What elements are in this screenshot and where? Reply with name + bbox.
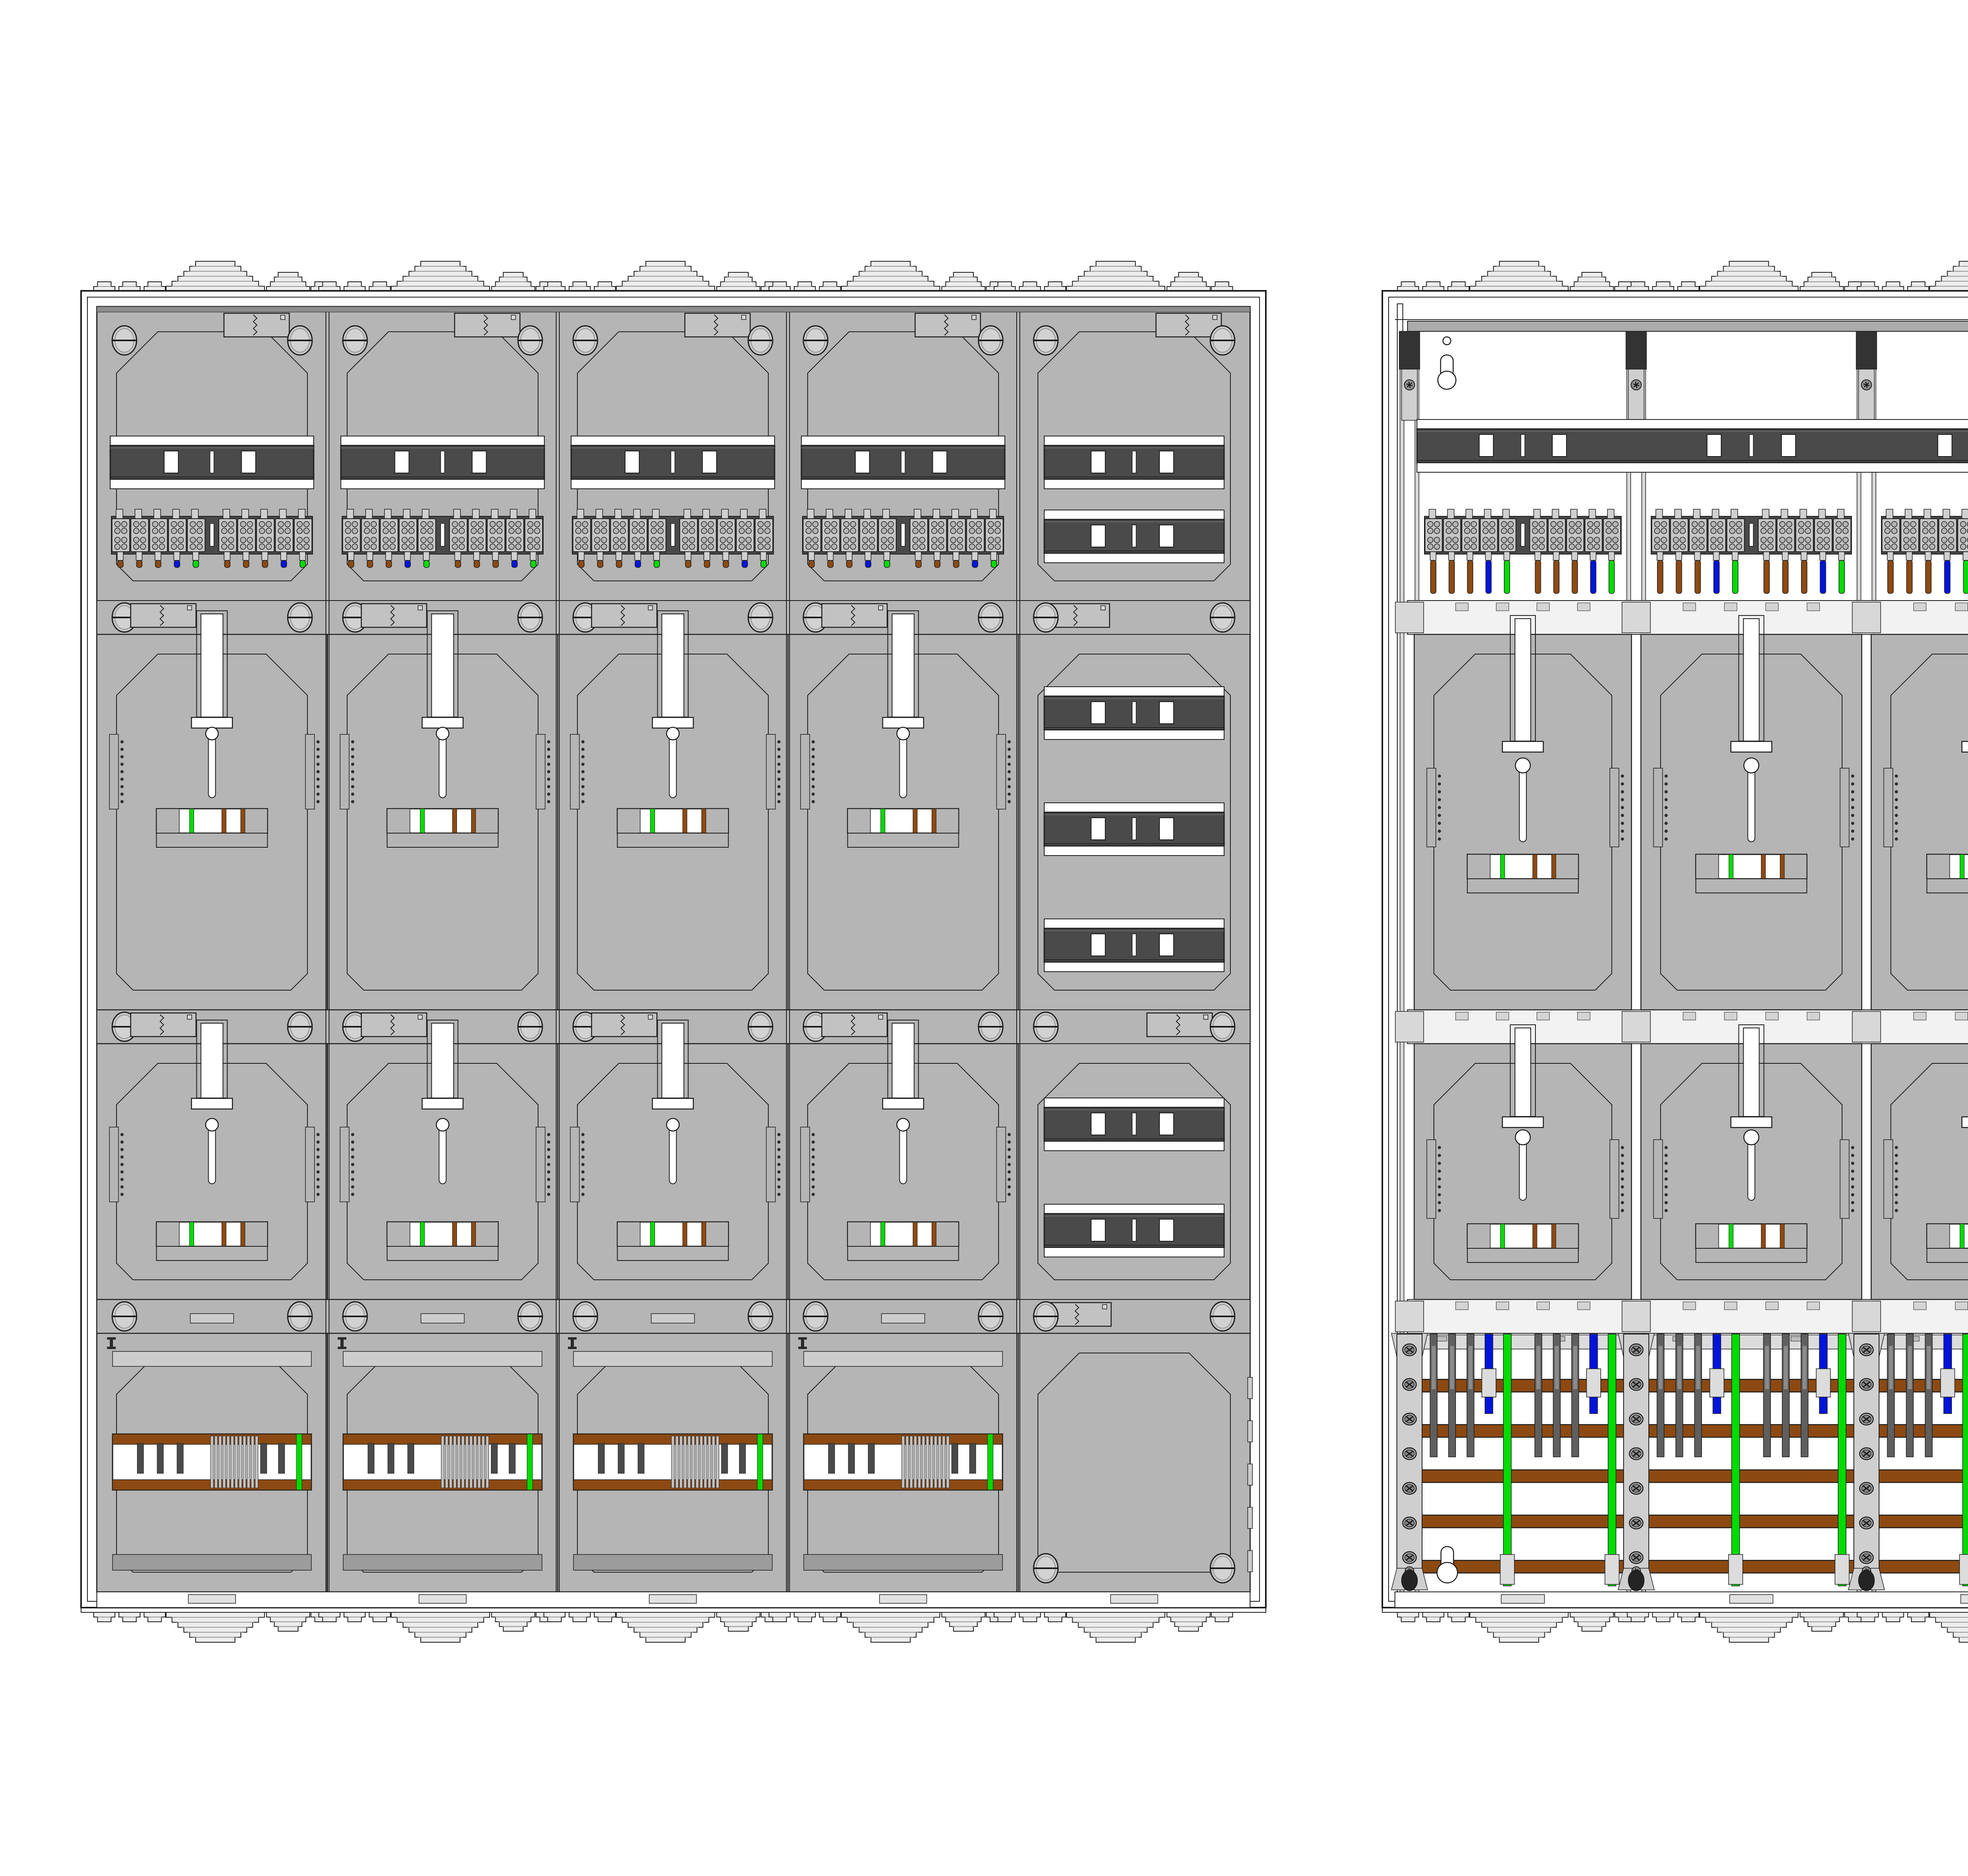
busbar-window — [343, 1434, 542, 1490]
wire-brown — [1657, 560, 1663, 593]
latch-icon — [592, 1013, 657, 1037]
wire-brown — [916, 560, 921, 567]
window-flap — [1927, 1248, 1968, 1262]
latch-icon — [224, 313, 289, 337]
top-cross-rail — [1408, 321, 1968, 331]
meter-cover-panel — [97, 611, 327, 1010]
busbar-support-plate — [1391, 1333, 1428, 1591]
slat — [215, 1436, 217, 1488]
wire-green — [1609, 560, 1615, 593]
connector-tab — [278, 1444, 285, 1473]
oval-slot-screw-icon — [573, 326, 597, 355]
phase-stripe — [472, 1222, 476, 1246]
torx-screw-icon — [1861, 380, 1872, 390]
earth-stripe — [881, 1222, 885, 1246]
clip-handle — [1501, 1595, 1544, 1603]
slat — [462, 1436, 464, 1488]
meter-terminal-window — [387, 809, 498, 847]
din-rail — [1044, 1204, 1224, 1257]
wire-brown — [828, 560, 833, 567]
conductor-clip — [1940, 1369, 1955, 1397]
latch-icon — [131, 604, 196, 627]
slat — [441, 1436, 444, 1488]
earth-conductor — [1962, 1334, 1968, 1586]
din-rail — [1044, 436, 1224, 489]
meter-cover-panel — [1414, 1025, 1631, 1299]
slat — [934, 1436, 937, 1488]
phillips-screw-icon — [1630, 1379, 1643, 1390]
meter-cabinet-drawing — [0, 0, 1968, 1876]
phase-stripe — [241, 1222, 245, 1246]
wire-green — [1839, 560, 1844, 593]
edge-tab — [1248, 1551, 1252, 1572]
slat — [449, 1436, 452, 1488]
din-rail — [1417, 420, 1968, 472]
window-flap — [1467, 879, 1578, 893]
cover-handle — [1111, 1595, 1158, 1603]
wire-brown — [455, 560, 461, 567]
wire-brown — [474, 560, 479, 567]
slat — [946, 1436, 949, 1488]
earth-stripe — [527, 1434, 533, 1490]
bottom-row-cover-panel — [558, 1333, 788, 1592]
earth-stripe — [651, 809, 655, 833]
phillips-screw-icon — [1630, 1448, 1643, 1460]
oval-slot-screw-icon — [978, 326, 1003, 355]
blank-cover-panel — [1018, 1303, 1252, 1592]
busbar — [1417, 1515, 1968, 1528]
earth-stripe — [1729, 854, 1733, 879]
earth-stripe — [651, 1222, 655, 1246]
window-flap — [618, 833, 729, 847]
oval-slot-screw-icon — [518, 603, 542, 632]
wire-blue — [1944, 560, 1950, 593]
meter-cover-panel — [327, 611, 558, 1010]
earth-stripe — [1500, 1224, 1505, 1248]
drawing-page — [0, 0, 1968, 1876]
wire-brown — [224, 560, 230, 567]
phillips-screw-icon — [1403, 1344, 1417, 1356]
wire-brown — [685, 560, 691, 567]
meter-cover-panel — [1414, 615, 1631, 1010]
wire-blue — [972, 560, 978, 567]
busbar-window — [573, 1434, 772, 1490]
slat — [231, 1436, 234, 1488]
oval-slot-screw-icon — [112, 1302, 137, 1331]
connector-tab — [408, 1444, 414, 1473]
meter-cover-panel — [97, 1020, 327, 1299]
wire-brown — [118, 560, 123, 567]
slat — [902, 1436, 904, 1488]
din-rail — [1044, 803, 1224, 856]
torx-screw-icon — [1404, 380, 1415, 390]
meter-terminal-window — [848, 1222, 959, 1261]
window-flap — [1467, 1248, 1578, 1262]
connector-tab — [721, 1444, 728, 1473]
window-flap — [387, 833, 498, 847]
slat — [704, 1436, 707, 1488]
oval-slot-screw-icon — [518, 1302, 542, 1331]
phillips-screw-icon — [1403, 1482, 1417, 1494]
meter-terminal-window — [1696, 854, 1807, 893]
din-rail — [801, 436, 1005, 489]
oval-slot-screw-icon — [748, 1302, 773, 1331]
connector-tab — [388, 1444, 394, 1473]
cover-handle — [649, 1595, 697, 1603]
slat — [910, 1436, 913, 1488]
phillips-screw-icon — [1403, 1448, 1417, 1460]
cable-entry-flange-row — [94, 1612, 1233, 1642]
wire-brown — [1888, 560, 1893, 593]
wire-green — [1504, 560, 1510, 593]
busbar — [1417, 1560, 1968, 1573]
phase-stripe — [1533, 854, 1537, 879]
earth-conductor — [1504, 1334, 1511, 1586]
slat — [942, 1436, 945, 1488]
din-rail — [571, 436, 775, 489]
slat — [926, 1436, 929, 1488]
earth-stripe — [420, 1222, 425, 1246]
wire-brown — [262, 560, 268, 567]
wire-blue — [635, 560, 641, 567]
phase-stripe — [932, 809, 936, 833]
phase-stripe — [683, 1222, 687, 1246]
foot-oval — [1628, 1570, 1644, 1591]
wire-brown — [367, 560, 373, 567]
meter-cover-panel — [1641, 1025, 1862, 1299]
phillips-screw-icon — [1860, 1517, 1874, 1529]
wire-brown — [1676, 560, 1681, 593]
wire-blue — [281, 560, 287, 567]
earth-conductor — [1838, 1334, 1846, 1586]
window-flap — [618, 1246, 729, 1261]
window-flap — [1696, 879, 1807, 893]
earth-stripe — [881, 809, 885, 833]
wire-brown — [809, 560, 814, 567]
oval-slot-screw-icon — [1210, 1012, 1235, 1041]
phillips-screw-icon — [1860, 1413, 1874, 1425]
edge-tab — [1248, 1421, 1252, 1442]
slat — [675, 1436, 678, 1488]
slat — [906, 1436, 908, 1488]
connector-tab — [368, 1444, 374, 1473]
slat — [930, 1436, 933, 1488]
connector-tab — [868, 1444, 875, 1473]
slat — [684, 1436, 686, 1488]
slat — [211, 1436, 213, 1488]
wire-brown — [1764, 560, 1769, 593]
wire-green — [991, 560, 997, 567]
connector-tab — [829, 1444, 835, 1473]
slat — [922, 1436, 925, 1488]
earth-conductor — [1732, 1334, 1740, 1586]
wire-brown — [1449, 560, 1454, 593]
connector-tab — [598, 1444, 605, 1473]
slat — [247, 1436, 250, 1488]
oval-slot-screw-icon — [748, 1012, 773, 1041]
phase-stripe — [472, 809, 476, 833]
slat — [239, 1436, 242, 1488]
connector-tab — [157, 1444, 163, 1473]
wire-brown — [1802, 560, 1807, 593]
foot-oval — [1859, 1570, 1874, 1591]
phillips-screw-icon — [1860, 1344, 1874, 1356]
phillips-screw-icon — [1403, 1552, 1417, 1564]
oval-slot-screw-icon — [518, 326, 542, 355]
wire-brown — [953, 560, 959, 567]
din-rail — [1044, 919, 1224, 972]
conductor-clip — [1729, 1554, 1743, 1584]
wire-green — [424, 560, 429, 567]
wire-brown — [348, 560, 354, 567]
meter-terminal-window — [1696, 1224, 1807, 1262]
phase-stripe — [683, 809, 687, 833]
meter-terminal-window — [1927, 1224, 1968, 1262]
phase-stripe — [222, 1222, 226, 1246]
oval-slot-screw-icon — [288, 1302, 312, 1331]
oval-slot-screw-icon — [748, 326, 773, 355]
hanger-hole — [1443, 337, 1451, 345]
cover-handle — [189, 1595, 236, 1603]
earth-stripe — [757, 1434, 763, 1490]
latch-icon — [685, 313, 750, 337]
phillips-screw-icon — [1403, 1517, 1417, 1529]
connector-tab — [177, 1444, 183, 1473]
oval-slot-screw-icon — [803, 326, 828, 355]
divider-band — [1395, 601, 1968, 634]
wire-green — [1963, 560, 1968, 593]
slat — [482, 1436, 485, 1488]
busbar-window — [113, 1434, 311, 1490]
meter-terminal-window — [618, 1222, 729, 1261]
conductor-clip — [1605, 1554, 1619, 1584]
earth-stripe — [190, 809, 194, 833]
wire-brown — [1783, 560, 1788, 593]
foot-oval — [1402, 1570, 1417, 1591]
earth-stripe — [1729, 1224, 1733, 1248]
meter-cover-panel — [788, 1020, 1018, 1299]
wire-brown — [1907, 560, 1912, 593]
latch-icon — [361, 604, 427, 627]
right-cabinet-interior-view — [1382, 291, 1968, 1608]
slat — [708, 1436, 711, 1488]
latch-icon — [455, 313, 520, 337]
earth-stripe — [988, 1434, 993, 1490]
wire-blue — [866, 560, 871, 567]
busbar — [1417, 1470, 1968, 1482]
wire-brown — [847, 560, 852, 567]
cable-entry-flange-row — [1397, 1612, 1968, 1642]
latch-icon — [822, 604, 887, 627]
meter-terminal-window — [1467, 854, 1578, 893]
phase-stripe — [241, 809, 245, 833]
cable-entry-flange-row — [94, 261, 1233, 291]
wire-brown — [934, 560, 940, 567]
bottom-row-cover-panel — [327, 1333, 558, 1592]
meter-terminal-window — [618, 809, 729, 847]
meter-terminal-window — [157, 809, 268, 847]
phase-stripe — [913, 1222, 917, 1246]
meter-cover-panel — [788, 611, 1018, 1010]
wire-brown — [1572, 560, 1578, 593]
top-strip — [1417, 1335, 1968, 1349]
slat — [251, 1436, 254, 1488]
wire-green — [654, 560, 659, 567]
window-flap — [157, 1246, 268, 1261]
wire-brown — [493, 560, 498, 567]
phillips-screw-icon — [1630, 1552, 1643, 1564]
wire-brown — [155, 560, 161, 567]
window-flap — [1696, 1248, 1807, 1262]
busbar-support-plate — [1618, 1333, 1654, 1591]
wire-brown — [1467, 560, 1473, 593]
oval-slot-screw-icon — [1034, 1302, 1058, 1331]
slat — [914, 1436, 917, 1488]
cover-handle — [419, 1595, 466, 1603]
wire-blue — [1820, 560, 1826, 593]
wire-brown — [386, 560, 392, 567]
cover-handle — [882, 1314, 925, 1323]
conductor-clip — [1482, 1369, 1496, 1397]
conductor-clip — [1500, 1554, 1515, 1584]
phase-stripe — [1780, 1224, 1785, 1248]
connector-tab — [969, 1444, 976, 1473]
wire-blue — [1714, 560, 1719, 593]
divider-band — [1395, 1299, 1968, 1333]
oval-slot-screw-icon — [1034, 1554, 1058, 1583]
wire-blue — [742, 560, 747, 567]
slat — [692, 1436, 695, 1488]
window-flap — [848, 1246, 959, 1261]
meter-cover-panel — [1641, 615, 1862, 1010]
meter-cover-panel — [327, 1020, 558, 1299]
oval-slot-screw-icon — [1210, 1554, 1235, 1583]
phase-stripe — [1780, 854, 1785, 879]
busbar — [1417, 1379, 1968, 1392]
connector-tab — [739, 1444, 745, 1473]
window-flap — [387, 1246, 498, 1261]
din-rail — [1044, 1098, 1224, 1151]
slat — [453, 1436, 456, 1488]
wire-brown — [704, 560, 710, 567]
wire-blue — [512, 560, 517, 567]
conductor-clip — [1587, 1369, 1601, 1397]
oval-slot-screw-icon — [112, 326, 137, 355]
oval-slot-screw-icon — [518, 1012, 542, 1041]
cover-handle — [421, 1314, 464, 1323]
edge-tab — [1248, 1507, 1252, 1529]
conductor-clip — [1835, 1554, 1849, 1584]
slat — [938, 1436, 941, 1488]
slat — [223, 1436, 226, 1488]
meter-cover-panel — [558, 611, 788, 1010]
connector-tab — [952, 1444, 958, 1473]
clip-handle — [1961, 1595, 1968, 1603]
wire-brown — [243, 560, 249, 567]
wire-brown — [616, 560, 622, 567]
latch-icon — [361, 1013, 427, 1037]
window-flap — [848, 833, 959, 847]
wire-brown — [1554, 560, 1559, 593]
wire-blue — [174, 560, 180, 567]
oval-slot-screw-icon — [343, 326, 367, 355]
wire-brown — [1430, 560, 1436, 593]
busbar-window — [804, 1434, 1002, 1490]
phase-stripe — [453, 809, 457, 833]
phillips-screw-icon — [1403, 1379, 1417, 1390]
window-flap — [1927, 879, 1968, 893]
meter-cover-panel — [1871, 615, 1968, 1010]
conductor-clip — [1710, 1369, 1724, 1397]
slat — [255, 1436, 258, 1488]
phase-stripe — [932, 1222, 936, 1246]
din-rail — [1044, 687, 1224, 739]
wire-brown — [1925, 560, 1931, 593]
wire-brown — [579, 560, 584, 567]
torx-screw-icon — [1631, 380, 1641, 390]
bottom-row-cover-panel — [97, 1333, 327, 1592]
earth-stripe — [1500, 854, 1505, 879]
wire-brown — [597, 560, 603, 567]
slat — [235, 1436, 238, 1488]
earth-stripe — [420, 809, 425, 833]
edge-tab — [1248, 1377, 1252, 1399]
meter-terminal-window — [848, 809, 959, 847]
phase-stripe — [1552, 854, 1556, 879]
clip-handle — [1730, 1595, 1773, 1603]
cover-handle — [651, 1314, 695, 1323]
oval-slot-screw-icon — [1034, 1012, 1058, 1041]
slat — [478, 1436, 481, 1488]
oval-slot-screw-icon — [748, 603, 773, 632]
wire-brown — [1535, 560, 1541, 593]
phase-stripe — [913, 809, 917, 833]
wire-green — [884, 560, 890, 567]
wire-brown — [1695, 560, 1700, 593]
meter-terminal-window — [387, 1222, 498, 1261]
earth-stripe — [296, 1434, 302, 1490]
slat — [680, 1436, 683, 1488]
earth-stripe — [190, 1222, 194, 1246]
keyhole-hanger — [1438, 355, 1456, 389]
slat — [688, 1436, 690, 1488]
wire-blue — [1486, 560, 1491, 593]
oval-slot-screw-icon — [288, 603, 312, 632]
divider-band — [1395, 1010, 1968, 1044]
wire-green — [300, 560, 305, 567]
slat — [474, 1436, 476, 1488]
slat — [716, 1436, 719, 1488]
phase-stripe — [1761, 1224, 1766, 1248]
phillips-screw-icon — [1630, 1344, 1643, 1356]
slat — [219, 1436, 222, 1488]
oval-slot-screw-icon — [978, 603, 1003, 632]
oval-slot-screw-icon — [803, 1302, 828, 1331]
slat — [470, 1436, 472, 1488]
oval-slot-screw-icon — [1034, 603, 1058, 632]
phillips-screw-icon — [1860, 1448, 1874, 1460]
phase-stripe — [453, 1222, 457, 1246]
earth-stripe — [1960, 1224, 1964, 1248]
oval-slot-screw-icon — [1210, 603, 1235, 632]
busbar — [1417, 1425, 1968, 1437]
latch-icon — [131, 1013, 196, 1037]
phase-stripe — [702, 1222, 706, 1246]
left-cabinet-front-view — [81, 291, 1266, 1608]
meter-cover-panel — [1871, 1025, 1968, 1299]
busbar-support-plate — [1848, 1333, 1885, 1591]
phillips-screw-icon — [1630, 1482, 1643, 1494]
